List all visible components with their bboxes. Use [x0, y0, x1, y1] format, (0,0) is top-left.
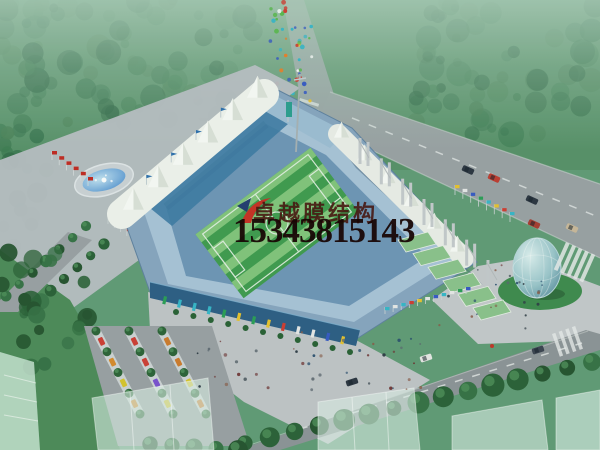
architectural-rendering: 卓越膜结构 15343815143	[0, 0, 600, 450]
scene-rendering	[0, 0, 600, 450]
color-cast-overlay	[0, 0, 600, 450]
